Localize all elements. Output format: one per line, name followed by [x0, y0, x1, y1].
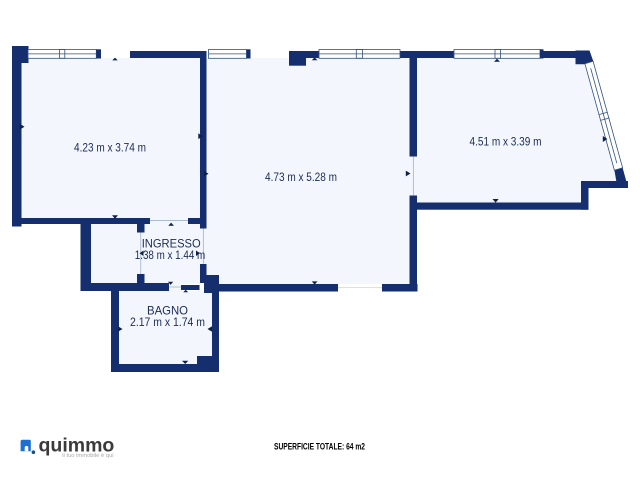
svg-text:4.23 m x 3.74 m: 4.23 m x 3.74 m — [74, 142, 146, 154]
svg-text:2.17 m x 1.74 m: 2.17 m x 1.74 m — [130, 317, 205, 329]
svg-text:1.38 m x 1.44 m: 1.38 m x 1.44 m — [135, 250, 206, 262]
svg-text:il tuo immobile è qui: il tuo immobile è qui — [62, 453, 113, 459]
svg-text:4.51 m x 3.39 m: 4.51 m x 3.39 m — [470, 136, 542, 148]
svg-text:INGRESSO: INGRESSO — [142, 237, 201, 251]
svg-text:4.73 m x 5.28 m: 4.73 m x 5.28 m — [265, 172, 337, 184]
svg-text:SUPERFICIE TOTALE: 64 m2: SUPERFICIE TOTALE: 64 m2 — [274, 442, 365, 452]
svg-text:BAGNO: BAGNO — [147, 304, 188, 318]
